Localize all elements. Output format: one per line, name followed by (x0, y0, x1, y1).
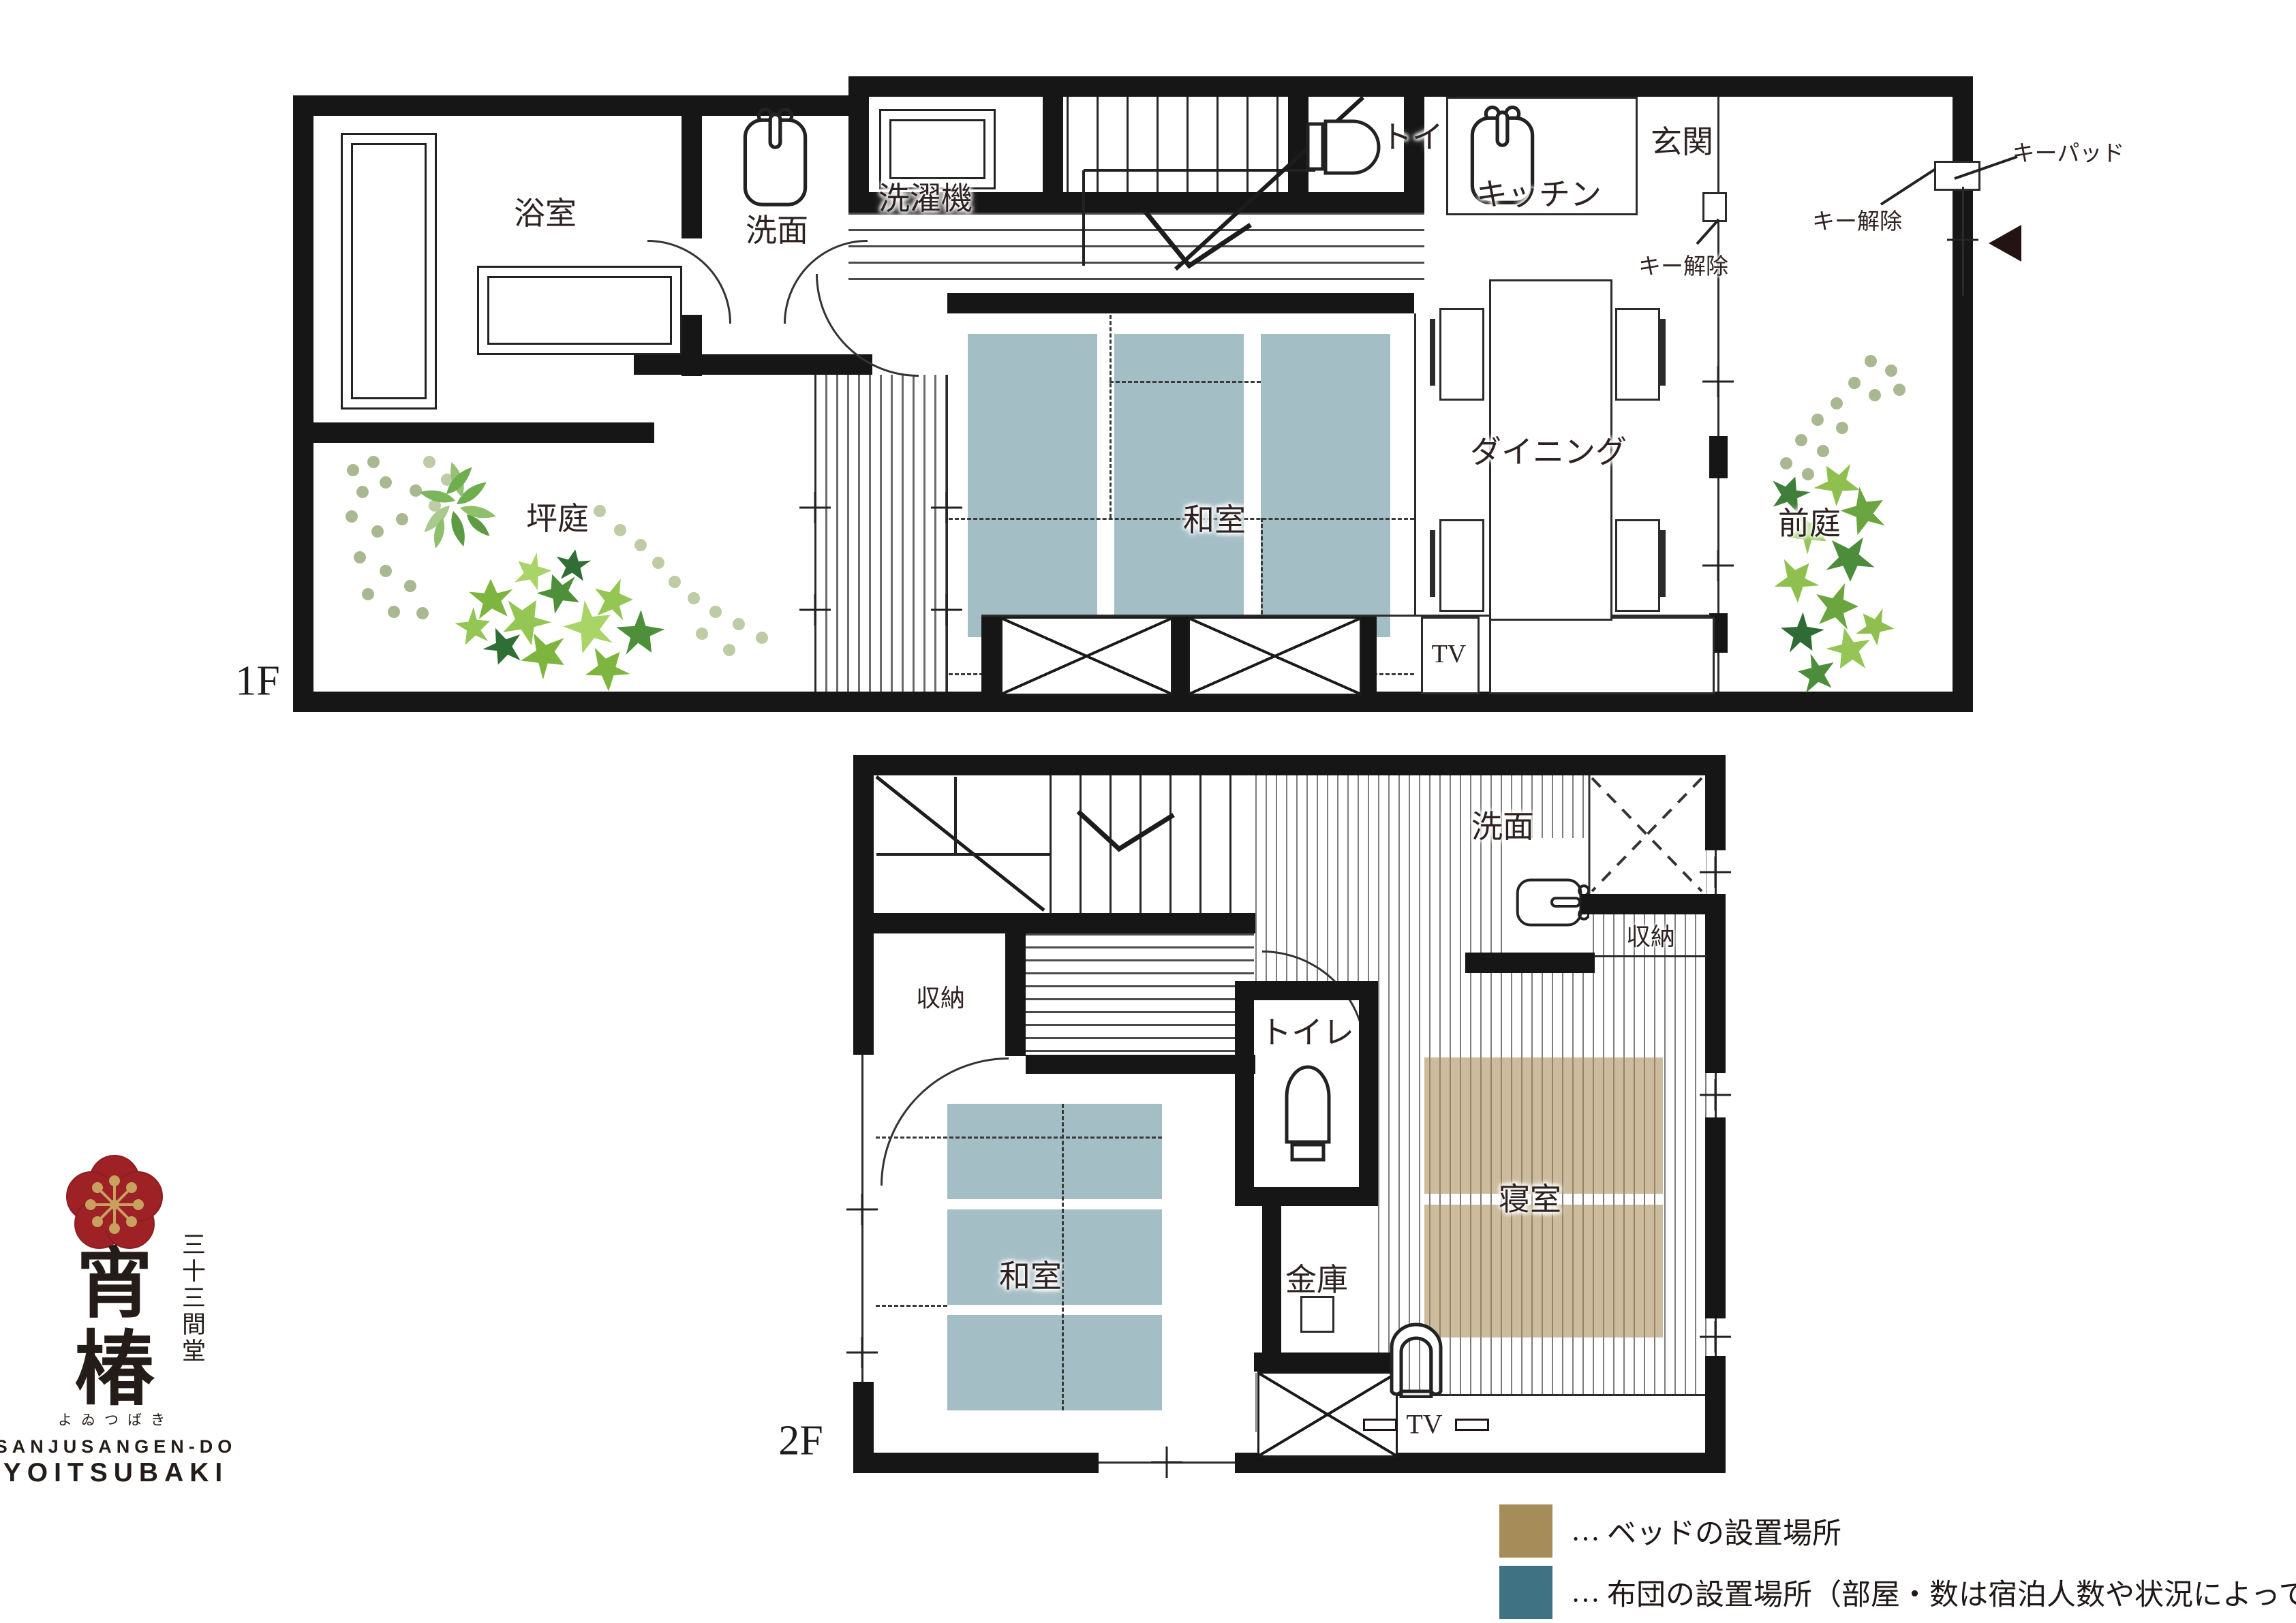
toilet-icon (1280, 1062, 1336, 1171)
chair-back (1660, 530, 1666, 597)
futon-area (1114, 334, 1244, 637)
chair-back (1430, 530, 1435, 597)
closet-floor (1026, 933, 1254, 1055)
room-label-bath: 浴室 (514, 189, 577, 234)
room-label-washroom-1f: 洗面 (746, 206, 808, 251)
room-label-toilet-2f: トイレ (1260, 1008, 1354, 1053)
courtyard-garden-foliage (320, 429, 818, 695)
logo-furigana: よゐつばき (58, 1409, 174, 1429)
wall (853, 755, 874, 1055)
legend-bed-label: ベッドの設置場所 (1607, 1510, 1841, 1552)
logo-char-tsubaki: 椿 (74, 1330, 155, 1410)
stairs-arrow-icon (874, 774, 1255, 914)
closet-x-panel (1188, 617, 1362, 696)
brand-logo: 三十三間堂 宵 椿 よゐつばき SANJUSANGEN-DO YOITSUBAK… (27, 1138, 273, 1492)
room-label-courtyard: 坪庭 (526, 494, 589, 539)
bathtub (341, 133, 437, 409)
leader-lines (1636, 129, 2045, 286)
window-tick (931, 594, 962, 625)
window-tick (1700, 1079, 1731, 1111)
wall (682, 97, 702, 238)
wall (853, 1453, 1099, 1473)
room-label-storage-left: 収納 (916, 978, 965, 1014)
sink-icon (739, 108, 811, 210)
wall (1262, 1206, 1281, 1373)
chair-back (1660, 319, 1666, 386)
armchair-icon (1382, 1320, 1450, 1398)
bench-cabinet (1489, 617, 1715, 694)
void-x-dashed (1588, 774, 1706, 895)
legend-futon-ellipsis: … (1571, 1576, 1600, 1609)
safe-box (1300, 1296, 1334, 1333)
bed-area (1424, 1205, 1663, 1338)
wall (1705, 896, 1726, 1073)
closet-x-panel (1000, 617, 1173, 696)
closet-x-panel (1257, 1372, 1398, 1457)
floor1-label: 1F (235, 658, 279, 706)
room-label-tatami-1f: 和室 (1183, 495, 1246, 540)
legend-futon-swatch (1499, 1566, 1552, 1619)
window-tick (931, 492, 962, 523)
legend-futon-label: 布団の設置場所（部屋・数は宿泊人数や状況によって異なります。） (1607, 1571, 2296, 1613)
wall (853, 755, 1726, 775)
dining-chair (1439, 308, 1484, 401)
sliding-door-segment (1709, 436, 1728, 478)
engawa-floor (814, 375, 947, 692)
room-label-washroom-2f: 洗面 (1471, 802, 1534, 847)
dining-chair (1615, 308, 1660, 401)
wall (1465, 953, 1595, 973)
wall (1705, 1117, 1726, 1318)
room-label-tatami-2f: 和室 (999, 1252, 1062, 1297)
wall (1026, 1055, 1255, 1074)
tatami-grid-dash (949, 518, 1414, 520)
tv-mark (1455, 1419, 1489, 1431)
legend-bed-ellipsis: … (1571, 1515, 1600, 1548)
wall (293, 95, 313, 712)
wall (1705, 755, 1726, 850)
logo-latin-line1: SANJUSANGEN-DO (0, 1436, 236, 1457)
tv-label-1f: TV (1432, 639, 1467, 669)
tatami-grid-dash (1062, 1104, 1064, 1410)
tatami-grid-dash (876, 1137, 1162, 1139)
wall (848, 76, 1973, 97)
floor1-plan: 浴室 洗面 洗濯機 トイレ (0, 0, 2296, 749)
futon-area (947, 1315, 1162, 1410)
wall (1235, 1187, 1378, 1206)
wall (874, 913, 1255, 933)
wall (947, 293, 1414, 313)
futon-area (1261, 334, 1390, 637)
wall (1705, 1356, 1726, 1473)
shelf-line (1591, 955, 1707, 957)
logo-hall-name: 三十三間堂 (174, 1232, 209, 1389)
legend: … ベッドの設置場所 … 布団の設置場所（部屋・数は宿泊人数や状況によって異なり… (1493, 1492, 2296, 1623)
room-label-safe: 金庫 (1285, 1255, 1348, 1300)
room-label-washing-machine: 洗濯機 (878, 174, 973, 219)
tv-label-2f: TV (1406, 1408, 1442, 1440)
room-label-storage-right: 収納 (1626, 917, 1675, 953)
tatami-grid-dash (876, 1305, 947, 1307)
wall (1359, 981, 1378, 1206)
logo-latin-line2: YOITSUBAKI (3, 1458, 229, 1488)
window-tick (846, 1194, 878, 1225)
futon-area (947, 1104, 1162, 1199)
room-label-dining: ダイニング (1470, 427, 1627, 472)
dining-chair (1439, 519, 1484, 612)
wall (1235, 981, 1254, 1206)
window-tick (846, 1337, 878, 1368)
tatami-grid-dash (1109, 315, 1112, 518)
wall (848, 97, 869, 192)
door-arc (647, 240, 731, 324)
sink-icon (1514, 867, 1589, 938)
room-label-kitchen: キッチン (1476, 170, 1602, 215)
partition-line (1414, 313, 1416, 615)
window-tick (1151, 1447, 1182, 1478)
futon-area (968, 334, 1097, 637)
wall (1005, 933, 1026, 1056)
window-tick (1700, 1321, 1731, 1352)
floor2-plan: 収納 洗面 収納 トイレ 金庫 (0, 736, 2296, 1499)
floor-plan-sheet: 浴室 洗面 洗濯機 トイレ (0, 0, 2296, 1623)
room-label-bedroom: 寝室 (1499, 1175, 1561, 1220)
window-tick (1700, 856, 1731, 888)
floor2-label: 2F (778, 1417, 823, 1466)
post (981, 617, 1000, 692)
room-label-front-garden: 前庭 (1778, 499, 1841, 544)
wall (1235, 981, 1378, 1000)
engawa-line (946, 375, 948, 692)
logo-char-yoi: 宵 (76, 1247, 153, 1323)
chair-back (1430, 319, 1435, 386)
wall (1581, 894, 1726, 914)
wall (634, 354, 872, 375)
tatami-grid-dash (1109, 381, 1261, 383)
bed-area (1424, 1057, 1663, 1194)
wall (1254, 1352, 1397, 1372)
legend-bed-swatch (1499, 1504, 1552, 1558)
tv-mark (1363, 1419, 1397, 1431)
dining-chair (1615, 519, 1660, 612)
